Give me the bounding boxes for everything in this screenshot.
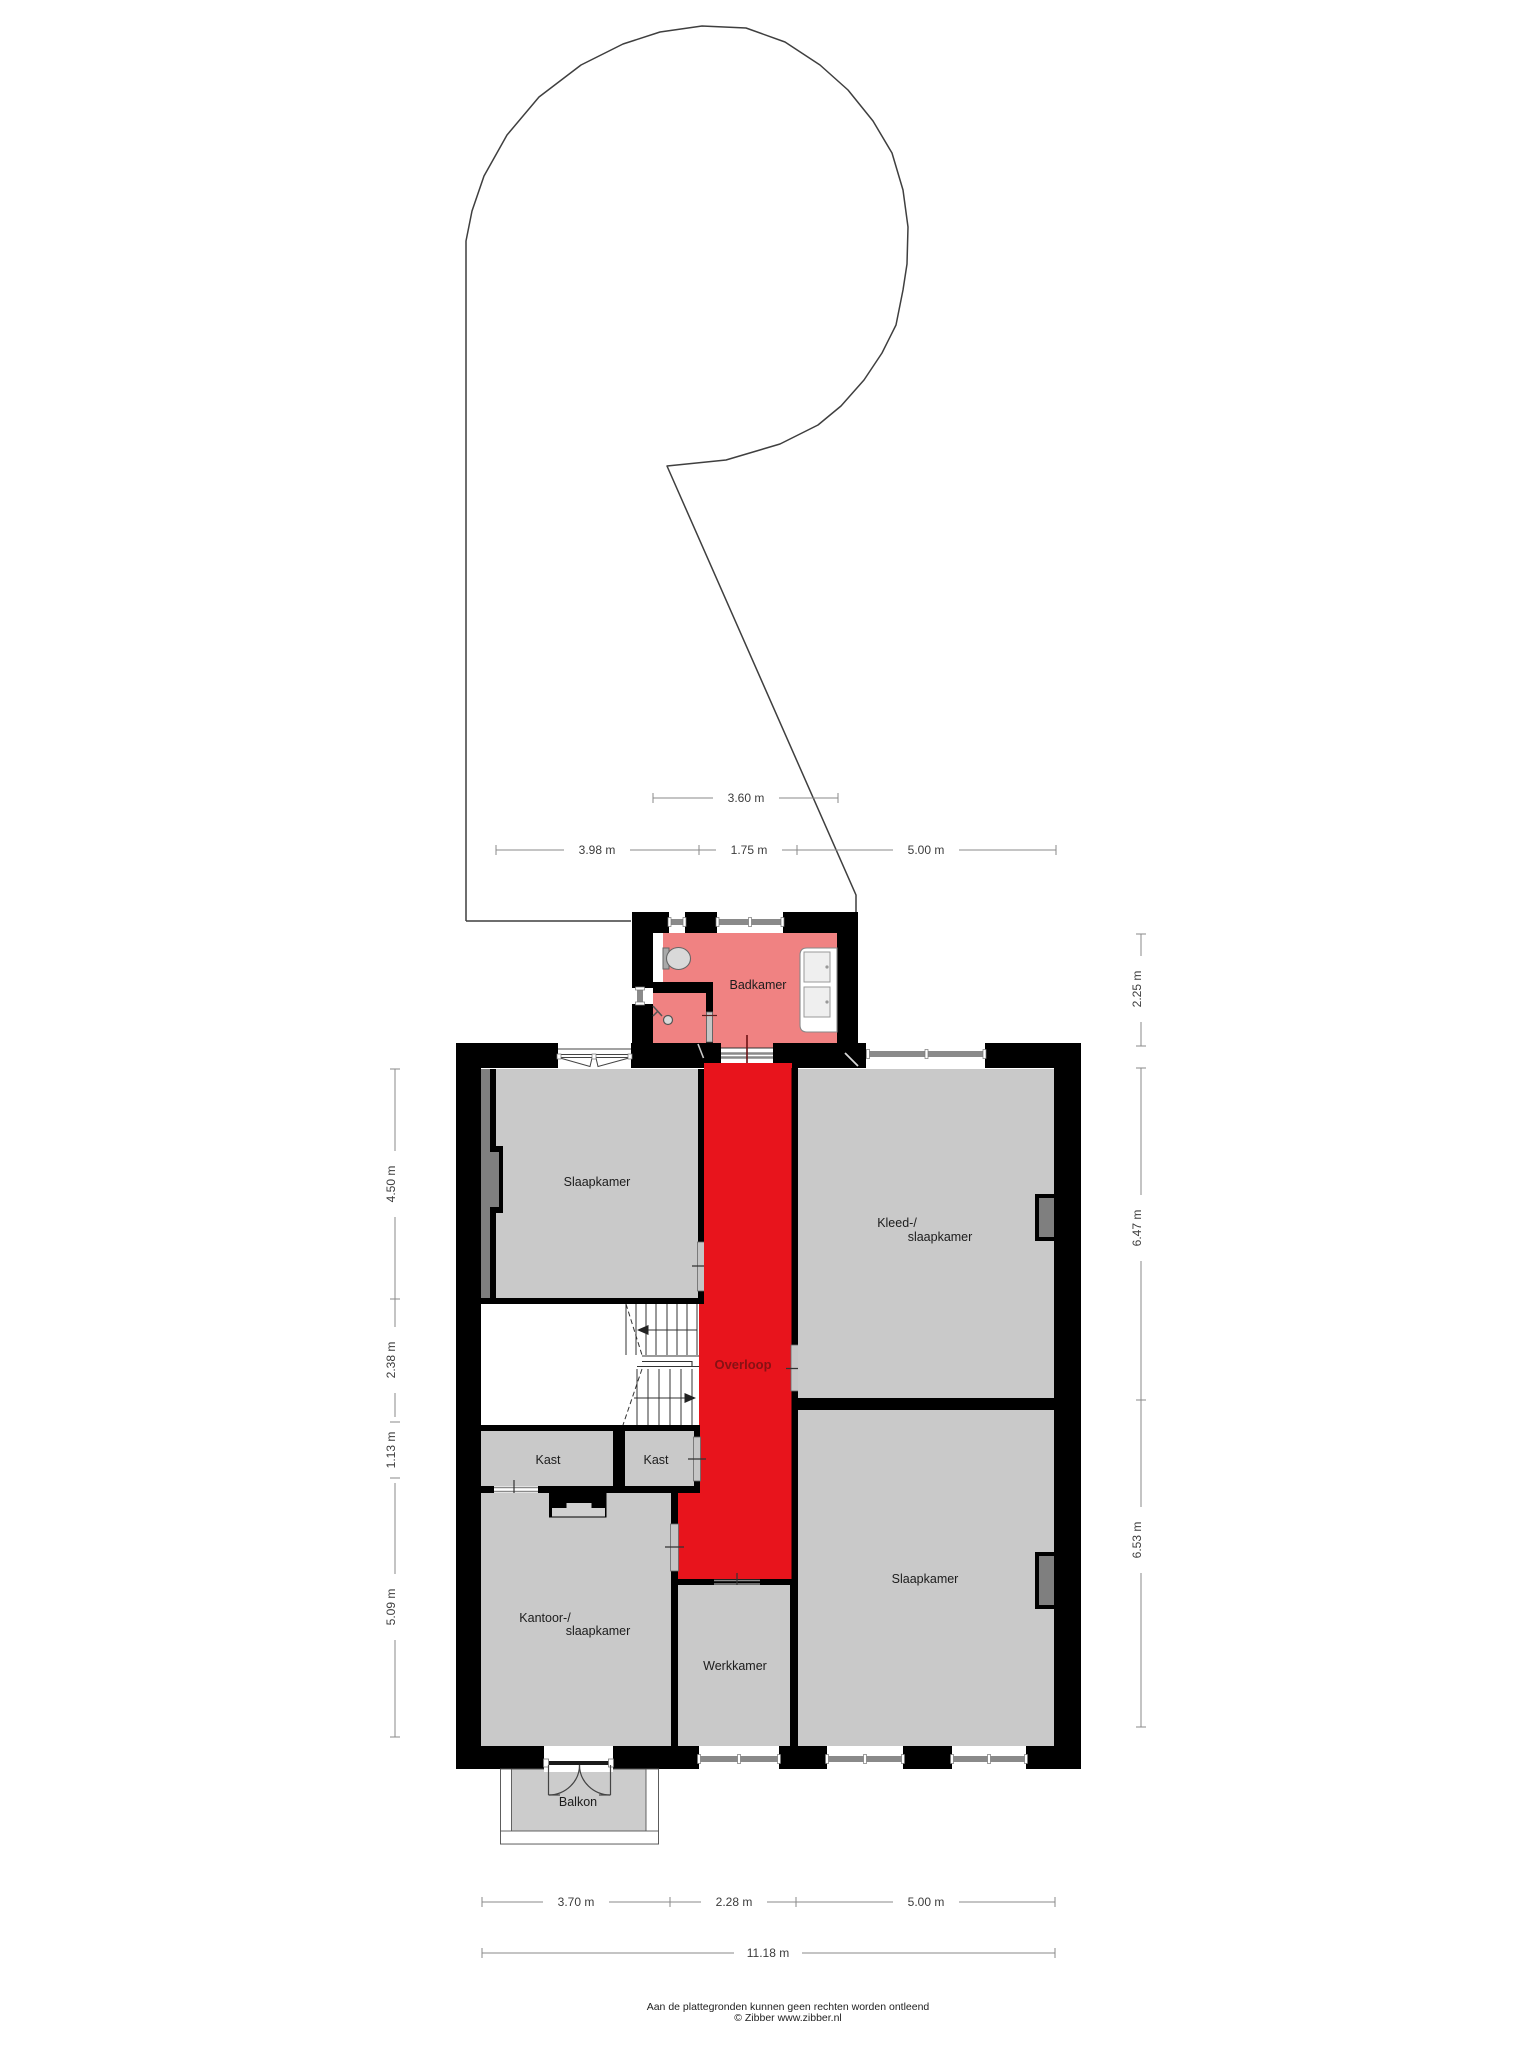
svg-text:Overloop: Overloop (714, 1357, 771, 1372)
svg-text:Kantoor-/: Kantoor-/ (519, 1611, 571, 1625)
svg-text:Balkon: Balkon (559, 1795, 597, 1809)
svg-text:3.60 m: 3.60 m (728, 791, 765, 805)
svg-text:Slaapkamer: Slaapkamer (892, 1572, 959, 1586)
svg-text:1.13 m: 1.13 m (384, 1432, 398, 1469)
svg-text:Kast: Kast (535, 1453, 561, 1467)
svg-text:Slaapkamer: Slaapkamer (564, 1175, 631, 1189)
svg-text:© Zibber www.zibber.nl: © Zibber www.zibber.nl (734, 2012, 842, 2024)
svg-text:2.28 m: 2.28 m (716, 1895, 753, 1909)
svg-text:slaapkamer: slaapkamer (908, 1230, 973, 1244)
svg-text:3.98 m: 3.98 m (579, 843, 616, 857)
svg-text:Badkamer: Badkamer (730, 978, 787, 992)
svg-text:slaapkamer: slaapkamer (566, 1624, 631, 1638)
svg-text:Kast: Kast (643, 1453, 669, 1467)
svg-text:5.00 m: 5.00 m (908, 843, 945, 857)
svg-text:Werkkamer: Werkkamer (703, 1659, 767, 1673)
svg-text:Kleed-/: Kleed-/ (877, 1216, 917, 1230)
svg-text:2.25 m: 2.25 m (1130, 971, 1144, 1008)
svg-text:5.00 m: 5.00 m (908, 1895, 945, 1909)
svg-text:5.09 m: 5.09 m (384, 1589, 398, 1626)
svg-text:3.70 m: 3.70 m (558, 1895, 595, 1909)
svg-text:11.18 m: 11.18 m (747, 1946, 789, 1960)
svg-text:1.75 m: 1.75 m (731, 843, 768, 857)
svg-text:6.47 m: 6.47 m (1130, 1210, 1144, 1247)
svg-text:6.53 m: 6.53 m (1130, 1522, 1144, 1559)
svg-text:2.38 m: 2.38 m (384, 1342, 398, 1379)
svg-text:4.50 m: 4.50 m (384, 1166, 398, 1203)
